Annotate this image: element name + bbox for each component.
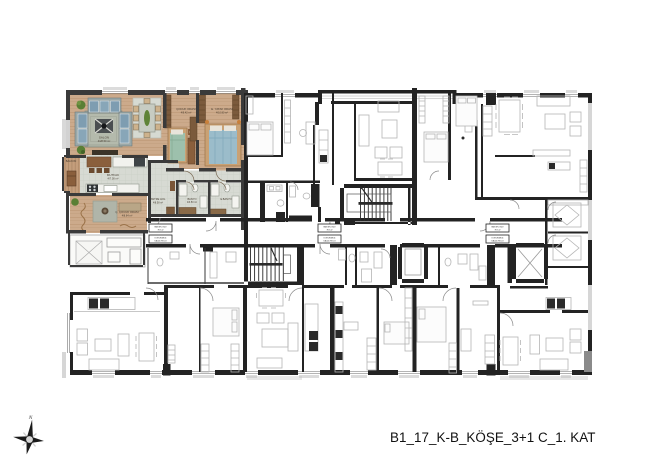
svg-text:KAÇIŞ HOLÜ: KAÇIŞ HOLÜ	[323, 240, 336, 243]
svg-text:BALKON: BALKON	[66, 159, 77, 163]
svg-text:4/8.58 m²: 4/8.58 m²	[153, 201, 163, 204]
svg-text:HOLÜ: HOLÜ	[495, 229, 501, 232]
svg-text:E.BANYO: E.BANYO	[220, 198, 231, 201]
svg-text:MUTFAK: MUTFAK	[107, 173, 119, 177]
svg-text:4/9.42 m²: 4/9.42 m²	[181, 111, 192, 114]
svg-text:KORUNMUŞ: KORUNMUŞ	[492, 238, 504, 240]
svg-text:HOLÜ: HOLÜ	[158, 229, 164, 232]
svg-text:KORUNMUŞ: KORUNMUŞ	[155, 238, 167, 240]
svg-text:SALON: SALON	[99, 136, 109, 140]
svg-text:4/28.50 m²: 4/28.50 m²	[98, 139, 111, 143]
svg-text:4/7.00 m²: 4/7.00 m²	[108, 176, 119, 180]
svg-text:YANGIN GÜV.: YANGIN GÜV.	[491, 226, 504, 229]
svg-text:B1_17_K-B_KÖŞE_3+1 C_1. KAT: B1_17_K-B_KÖŞE_3+1 C_1. KAT	[390, 430, 595, 445]
svg-text:KAÇIŞ HOLÜ: KAÇIŞ HOLÜ	[491, 240, 504, 243]
svg-text:YANGIN GÜV.: YANGIN GÜV.	[154, 226, 167, 229]
svg-text:4/8.64 m²: 4/8.64 m²	[122, 214, 133, 217]
svg-text:4/10.80 m²: 4/10.80 m²	[216, 111, 228, 114]
svg-text:KAÇIŞ HOLÜ: KAÇIŞ HOLÜ	[154, 240, 167, 243]
svg-text:4/3.50 m²: 4/3.50 m²	[187, 201, 197, 204]
svg-text:YANGIN GÜV.: YANGIN GÜV.	[323, 226, 336, 229]
svg-text:E. YATAK ODASI: E. YATAK ODASI	[211, 107, 233, 111]
svg-text:ÇOCUK ODASI: ÇOCUK ODASI	[176, 107, 196, 111]
svg-text:Ç. ÇOCUK ODASI: Ç. ÇOCUK ODASI	[115, 210, 138, 214]
svg-text:ANTRE HOL: ANTRE HOL	[151, 197, 166, 201]
svg-text:HOLÜ: HOLÜ	[327, 229, 333, 232]
svg-text:KORUNMUŞ: KORUNMUŞ	[324, 238, 336, 240]
